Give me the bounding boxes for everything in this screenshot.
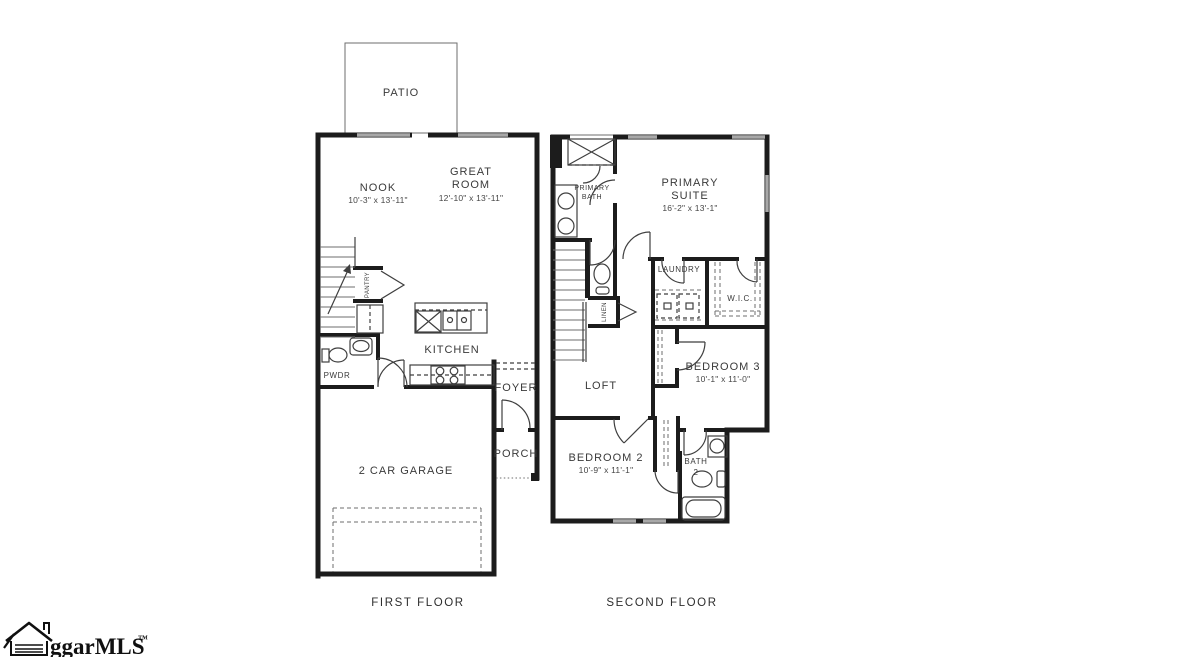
wic-label: W.I.C.: [727, 294, 752, 303]
pwdr-label: PWDR: [324, 371, 351, 380]
kitchen-counter: [410, 365, 494, 385]
porch-label: PORCH: [494, 448, 539, 460]
wic-closet-rods: [715, 262, 760, 316]
stairs-arrow-head: [343, 264, 351, 274]
powder-room-fixtures: [322, 338, 372, 362]
primary-suite-label-2: SUITE: [671, 190, 708, 202]
second-floor-plan: PRIMARY BATH PRIMARY SUITE 16'-2" x 13'-…: [550, 135, 767, 609]
primary-suite-label-1: PRIMARY: [662, 177, 719, 189]
great-room-label-1: GREAT: [450, 166, 492, 178]
shower-door-arc: [583, 166, 600, 183]
mls-logo-tm: ™: [138, 634, 148, 645]
bath-hall-door-arc: [590, 240, 615, 265]
bath2-door-arc: [684, 430, 706, 455]
house-icon: [4, 623, 52, 655]
pantry-label: PANTRY: [365, 272, 371, 298]
bath2-fixtures: [682, 430, 727, 520]
primary-suite-dims: 16'-2" x 13'-1": [662, 203, 717, 213]
laundry-label: LAUNDRY: [658, 265, 700, 274]
wall-chunk: [550, 135, 562, 168]
bath2-label-1: BATH: [684, 457, 707, 466]
garage-door-dashed: [333, 508, 481, 572]
closet-door-arc: [655, 470, 678, 493]
sink-icon: [710, 439, 724, 453]
toilet-base: [596, 287, 609, 294]
loft-label: LOFT: [585, 380, 617, 392]
mls-logo: ggarMLS ™: [4, 623, 148, 657]
sink-icon: [558, 218, 574, 234]
dryer-icon: [679, 294, 699, 318]
floor-plan-drawing: PATIO NOOK 10'-3" x 13'-11" GREAT ROOM 1…: [0, 0, 1188, 657]
bath-door-arc: [590, 180, 615, 205]
primary-bath-label-1: PRIMARY: [574, 185, 609, 192]
toilet-icon: [594, 264, 610, 284]
linen-label: LINEN: [602, 302, 608, 322]
washer-dryer: [655, 290, 701, 320]
bedroom2-label: BEDROOM 2: [568, 452, 643, 464]
linen-door: [618, 303, 636, 321]
toilet-icon: [329, 348, 347, 362]
washer-icon: [657, 294, 677, 318]
mls-logo-text: ggarMLS: [50, 634, 145, 657]
porch-post: [531, 473, 539, 481]
kitchen-island: [415, 303, 487, 333]
toilet-tank-icon: [322, 349, 329, 362]
bedroom3-label: BEDROOM 3: [685, 361, 760, 373]
staircase-first-floor: [320, 237, 355, 337]
bedroom3-dims: 10'-1" x 11'-0": [696, 374, 751, 384]
pantry-door: [381, 271, 404, 299]
bedroom2-door: [614, 419, 648, 443]
floor-plan-page: PATIO NOOK 10'-3" x 13'-11" GREAT ROOM 1…: [0, 0, 1188, 657]
suite-door-arc: [623, 232, 650, 259]
bedroom2-dims: 10'-9" x 11'-1": [579, 465, 634, 475]
first-floor-caption: FIRST FLOOR: [371, 597, 464, 609]
great-room-label-2: ROOM: [452, 179, 490, 191]
second-floor-caption: SECOND FLOOR: [606, 597, 717, 609]
toilet-tank-icon: [717, 471, 725, 487]
bedroom2-door-arc: [614, 419, 624, 443]
great-room-dims: 12'-10" x 13'-11": [439, 193, 504, 203]
sink-icon: [353, 341, 369, 352]
wic-door-arc: [737, 260, 757, 282]
refrigerator-box: [357, 305, 383, 333]
garage-door-arc: [378, 360, 404, 386]
kitchen-label: KITCHEN: [424, 344, 479, 356]
hall-doors: [378, 358, 407, 387]
nook-dims: 10'-3" x 13'-11": [348, 195, 408, 205]
garage-label: 2 CAR GARAGE: [359, 465, 454, 477]
primary-bath-label-2: BATH: [582, 194, 602, 201]
staircase-second-floor: [553, 250, 586, 362]
front-door: [502, 400, 530, 430]
sink-icon: [558, 193, 574, 209]
nook-label: NOOK: [360, 182, 396, 194]
first-floor-plan: PATIO NOOK 10'-3" x 13'-11" GREAT ROOM 1…: [318, 43, 539, 609]
bedroom2-closet: [655, 420, 678, 493]
patio-label: PATIO: [383, 87, 419, 99]
bath2-label-2: 2: [693, 468, 698, 477]
foyer-label: FOYER: [495, 382, 538, 394]
